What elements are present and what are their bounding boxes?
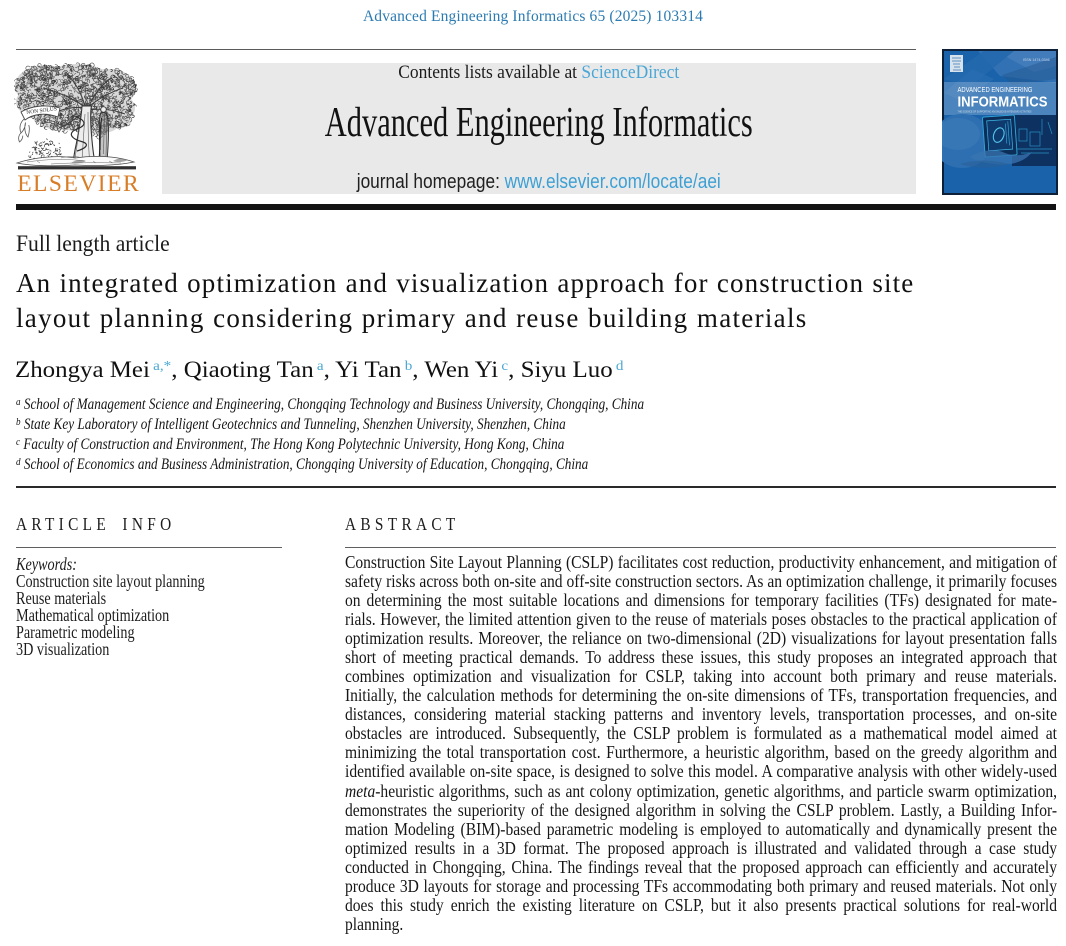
svg-text:ISSN 1474-0346: ISSN 1474-0346 — [1023, 58, 1050, 62]
svg-text:ADVANCED ENGINEERING: ADVANCED ENGINEERING — [957, 85, 1032, 94]
svg-text:THE SCIENCE OF SUPPORTING KNOW: THE SCIENCE OF SUPPORTING KNOWLEDGE-INTE… — [957, 110, 1031, 114]
svg-text:INFORMATICS: INFORMATICS — [957, 95, 1047, 111]
